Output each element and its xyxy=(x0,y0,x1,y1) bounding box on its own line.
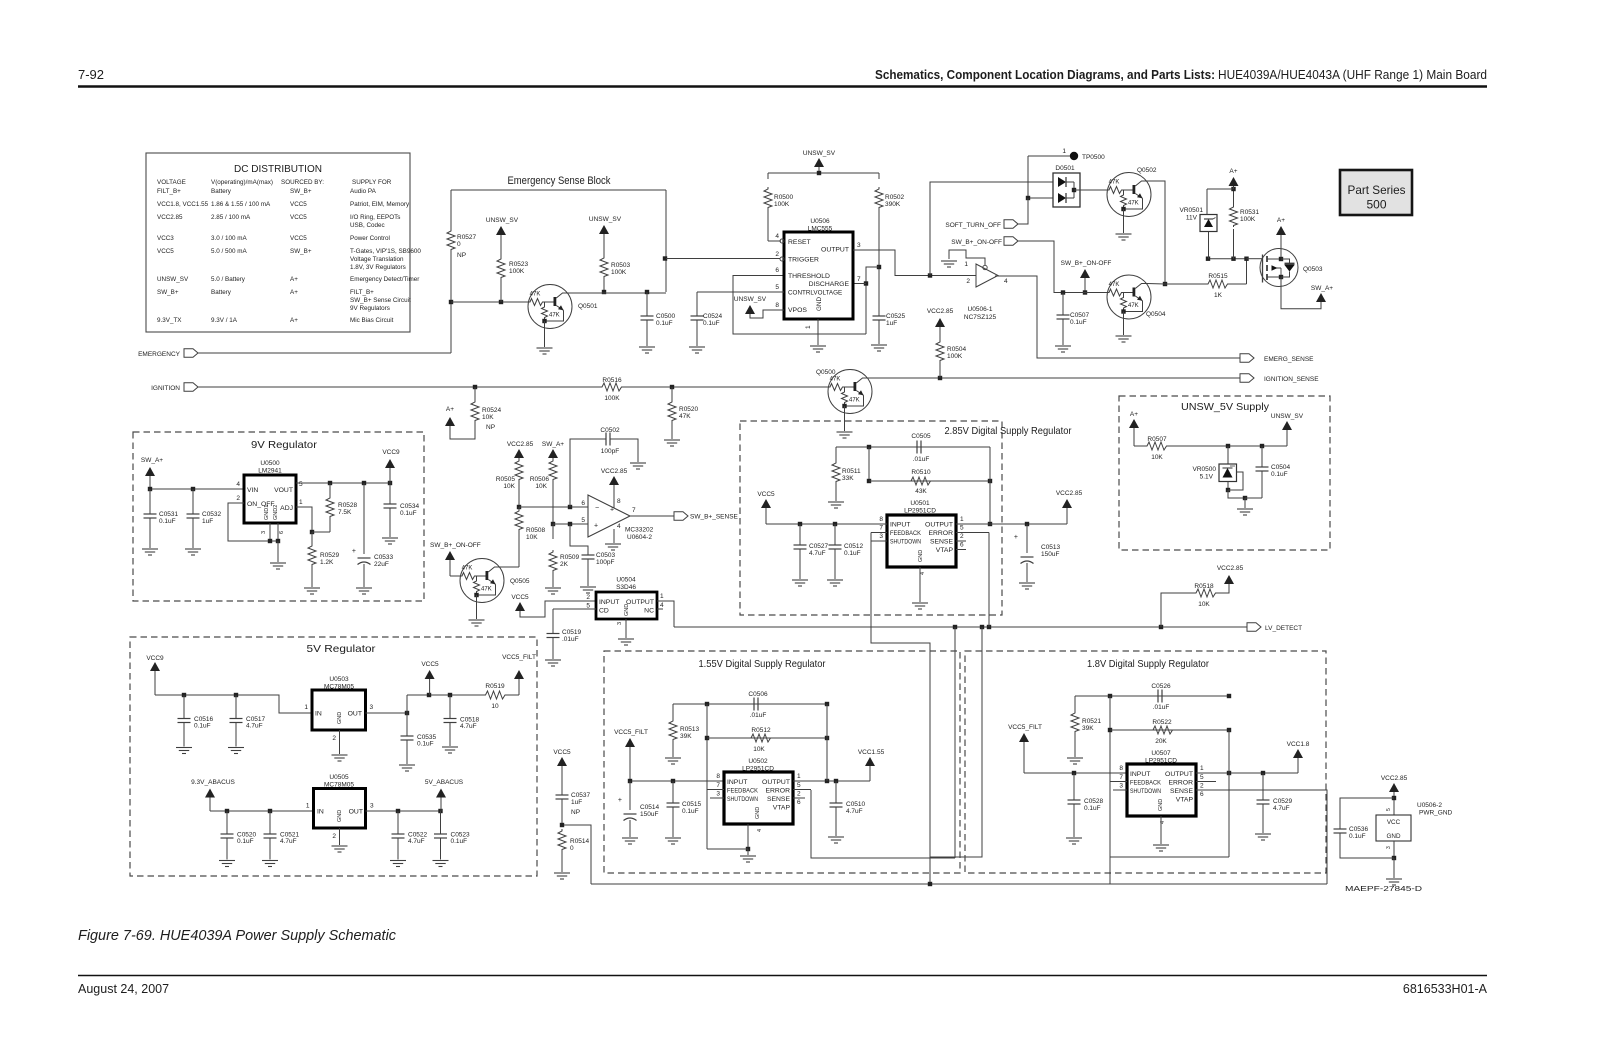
svg-text:3: 3 xyxy=(879,533,883,540)
svg-text:ERROR: ERROR xyxy=(765,788,790,795)
svg-text:2: 2 xyxy=(332,833,336,840)
svg-text:C0513: C0513 xyxy=(1041,544,1061,551)
svg-text:500: 500 xyxy=(1366,198,1386,212)
svg-text:ON_OFF: ON_OFF xyxy=(247,501,275,508)
svg-text:5.0 / 500 mA: 5.0 / 500 mA xyxy=(211,248,248,255)
svg-text:Emergency Sense Block: Emergency Sense Block xyxy=(508,175,611,187)
svg-text:1: 1 xyxy=(304,704,308,711)
svg-text:Q0505: Q0505 xyxy=(510,578,530,585)
svg-text:VCC5: VCC5 xyxy=(553,749,571,756)
svg-text:8: 8 xyxy=(775,302,779,309)
svg-text:C0512: C0512 xyxy=(844,543,864,550)
svg-text:100K: 100K xyxy=(774,201,790,208)
svg-text:FEEDBACK: FEEDBACK xyxy=(1130,780,1161,787)
svg-text:4.7uF: 4.7uF xyxy=(280,838,297,845)
svg-text:R0503: R0503 xyxy=(611,262,631,269)
svg-text:R0513: R0513 xyxy=(680,726,700,733)
svg-text:U0506: U0506 xyxy=(810,218,830,225)
svg-text:VCC3: VCC3 xyxy=(157,235,174,242)
svg-text:VCC5_FILT: VCC5_FILT xyxy=(1008,724,1042,731)
svg-text:VCC9: VCC9 xyxy=(146,655,164,662)
svg-text:VCC5: VCC5 xyxy=(757,491,775,498)
svg-text:Power Control: Power Control xyxy=(350,235,390,242)
svg-text:2.85V Digital Supply Regulator: 2.85V Digital Supply Regulator xyxy=(945,425,1072,437)
svg-text:2: 2 xyxy=(332,735,336,742)
svg-text:9V Regulators: 9V Regulators xyxy=(350,305,390,312)
svg-text:R0521: R0521 xyxy=(1082,718,1102,725)
svg-text:R0512: R0512 xyxy=(751,727,771,734)
svg-text:IN: IN xyxy=(317,809,324,816)
svg-text:LM2941: LM2941 xyxy=(258,468,282,475)
svg-text:47K: 47K xyxy=(679,413,691,420)
svg-text:4.7uF: 4.7uF xyxy=(1273,805,1290,812)
svg-text:8: 8 xyxy=(879,516,883,523)
svg-text:4: 4 xyxy=(1004,278,1008,285)
svg-text:R0523: R0523 xyxy=(509,261,529,268)
svg-text:LP2951CD: LP2951CD xyxy=(904,508,936,515)
svg-text:C0519: C0519 xyxy=(562,629,582,636)
svg-text:C0536: C0536 xyxy=(1349,826,1369,833)
svg-text:47K: 47K xyxy=(481,587,492,593)
svg-text:C0506: C0506 xyxy=(748,691,768,698)
svg-text:1uF: 1uF xyxy=(571,799,582,806)
svg-text:3: 3 xyxy=(1386,846,1392,849)
svg-text:VCC1.55: VCC1.55 xyxy=(858,749,885,756)
svg-text:4: 4 xyxy=(920,572,926,575)
svg-text:OUT: OUT xyxy=(348,711,362,718)
svg-text:SHUTDOWN: SHUTDOWN xyxy=(727,796,758,803)
svg-text:+: + xyxy=(1014,534,1018,541)
svg-text:R0528: R0528 xyxy=(338,502,358,509)
svg-text:6: 6 xyxy=(775,267,779,274)
svg-text:NP: NP xyxy=(571,809,580,816)
svg-text:VPOS: VPOS xyxy=(788,307,807,314)
svg-text:VCC5_FILT: VCC5_FILT xyxy=(502,654,536,661)
svg-text:VCC: VCC xyxy=(1387,819,1401,826)
svg-text:C0515: C0515 xyxy=(682,801,702,808)
svg-text:C0504: C0504 xyxy=(1271,464,1291,471)
svg-text:R0524: R0524 xyxy=(482,407,502,414)
svg-text:C0514: C0514 xyxy=(640,804,660,811)
svg-text:V(operating)/mA(max): V(operating)/mA(max) xyxy=(211,179,273,186)
svg-text:+: + xyxy=(594,523,598,530)
svg-text:U0501: U0501 xyxy=(910,500,930,507)
svg-text:R0506: R0506 xyxy=(530,476,550,483)
svg-text:GND: GND xyxy=(918,550,924,562)
svg-text:GND: GND xyxy=(624,604,630,616)
svg-text:7: 7 xyxy=(879,525,883,532)
svg-text:SW_B+: SW_B+ xyxy=(157,289,179,296)
svg-text:6816533H01-A: 6816533H01-A xyxy=(1403,982,1488,996)
svg-text:A+: A+ xyxy=(290,317,298,324)
svg-text:VCC2.85: VCC2.85 xyxy=(927,308,954,315)
svg-text:INPUT: INPUT xyxy=(1130,771,1150,778)
svg-text:47K: 47K xyxy=(462,566,473,572)
svg-text:SUPPLY FOR: SUPPLY FOR xyxy=(352,179,392,186)
svg-text:ADJ: ADJ xyxy=(280,505,293,512)
svg-text:VTAP: VTAP xyxy=(1176,797,1194,804)
svg-text:VCC5: VCC5 xyxy=(157,248,174,255)
svg-text:2: 2 xyxy=(966,278,970,285)
svg-text:8: 8 xyxy=(716,773,720,780)
svg-text:10K: 10K xyxy=(482,414,494,421)
svg-text:6: 6 xyxy=(581,500,585,507)
svg-text:CONTRLVOLTAGE: CONTRLVOLTAGE xyxy=(788,290,842,297)
svg-text:1.86 & 1.55 / 100 mA: 1.86 & 1.55 / 100 mA xyxy=(211,201,271,208)
svg-text:VTAP: VTAP xyxy=(936,547,954,554)
svg-text:VCC5: VCC5 xyxy=(290,201,307,208)
svg-text:7: 7 xyxy=(857,276,861,283)
svg-text:0.1uF: 0.1uF xyxy=(656,320,673,327)
svg-text:EMERGENCY: EMERGENCY xyxy=(138,351,181,358)
svg-text:CD: CD xyxy=(599,608,609,615)
svg-text:R0511: R0511 xyxy=(842,468,861,475)
svg-text:R0509: R0509 xyxy=(560,554,580,561)
svg-text:OUTPUT: OUTPUT xyxy=(626,599,654,606)
svg-text:VCC2.85: VCC2.85 xyxy=(157,214,183,221)
svg-text:SW_B+: SW_B+ xyxy=(290,188,312,195)
svg-text:R0504: R0504 xyxy=(947,346,967,353)
svg-text:OUTPUT: OUTPUT xyxy=(821,247,849,254)
svg-text:SW_A+: SW_A+ xyxy=(1311,285,1333,292)
svg-text:GND: GND xyxy=(755,807,761,819)
svg-text:5.0 / Battery: 5.0 / Battery xyxy=(211,276,246,283)
svg-text:1.2K: 1.2K xyxy=(320,559,334,566)
svg-text:6: 6 xyxy=(279,531,285,534)
svg-text:4: 4 xyxy=(660,602,664,609)
svg-text:GND: GND xyxy=(337,810,343,822)
svg-text:VOUT: VOUT xyxy=(274,487,293,494)
svg-text:GND1: GND1 xyxy=(264,505,270,520)
svg-text:R0500: R0500 xyxy=(774,194,794,201)
svg-text:47K: 47K xyxy=(1109,282,1120,288)
svg-text:SOFT_TURN_OFF: SOFT_TURN_OFF xyxy=(945,222,1001,229)
svg-text:PWR_GND: PWR_GND xyxy=(1419,810,1453,817)
svg-text:TRIGGER: TRIGGER xyxy=(788,257,819,264)
svg-text:IN: IN xyxy=(315,711,322,718)
svg-text:VR0501: VR0501 xyxy=(1180,207,1204,214)
svg-text:R0508: R0508 xyxy=(526,527,546,534)
svg-text:A+: A+ xyxy=(290,289,298,296)
svg-text:C0528: C0528 xyxy=(1084,798,1104,805)
svg-text:R0531: R0531 xyxy=(1240,209,1260,216)
svg-text:1uF: 1uF xyxy=(202,518,213,525)
svg-text:2: 2 xyxy=(586,594,590,601)
svg-text:47K: 47K xyxy=(849,398,860,404)
svg-text:SHUTDOWN: SHUTDOWN xyxy=(890,539,921,546)
svg-text:47K: 47K xyxy=(549,313,560,319)
svg-text:Q0503: Q0503 xyxy=(1303,266,1323,273)
svg-text:U0506-1: U0506-1 xyxy=(968,306,993,313)
svg-text:SW_B+_ON-OFF: SW_B+_ON-OFF xyxy=(1061,260,1112,267)
svg-text:7-92: 7-92 xyxy=(78,67,104,82)
svg-text:C0531: C0531 xyxy=(159,511,179,518)
svg-text:390K: 390K xyxy=(885,201,901,208)
svg-text:4: 4 xyxy=(617,523,621,530)
svg-text:INPUT: INPUT xyxy=(890,522,910,529)
svg-text:U0502: U0502 xyxy=(748,758,768,765)
svg-text:4: 4 xyxy=(236,481,240,488)
svg-text:5: 5 xyxy=(1200,774,1204,781)
svg-text:3: 3 xyxy=(261,531,267,534)
svg-text:R0519: R0519 xyxy=(485,683,505,690)
svg-text:SW_B+: SW_B+ xyxy=(290,248,312,255)
svg-text:TP0500: TP0500 xyxy=(1082,154,1105,161)
svg-text:LP2951CD: LP2951CD xyxy=(1145,758,1177,765)
svg-text:+: + xyxy=(610,507,614,514)
svg-text:SW_B+ Sense Circuit: SW_B+ Sense Circuit xyxy=(350,297,411,304)
svg-text:LV_DETECT: LV_DETECT xyxy=(1265,625,1302,632)
svg-text:9.3V_ABACUS: 9.3V_ABACUS xyxy=(191,779,235,786)
svg-text:7: 7 xyxy=(1119,774,1123,781)
svg-text:A+: A+ xyxy=(1277,217,1285,224)
svg-text:4.7uF: 4.7uF xyxy=(460,723,477,730)
svg-text:100pF: 100pF xyxy=(601,448,619,455)
svg-text:SW_B+_ON-OFF: SW_B+_ON-OFF xyxy=(430,542,481,549)
svg-text:10K: 10K xyxy=(1151,454,1163,461)
svg-text:INPUT: INPUT xyxy=(599,599,619,606)
svg-text:C0533: C0533 xyxy=(374,554,394,561)
svg-text:2: 2 xyxy=(797,791,801,798)
svg-text:VCC9: VCC9 xyxy=(382,449,400,456)
svg-text:43K: 43K xyxy=(915,488,927,495)
svg-text:0.1uF: 0.1uF xyxy=(844,550,861,557)
svg-text:MC33202: MC33202 xyxy=(625,527,654,534)
svg-text:4.7uF: 4.7uF xyxy=(246,723,263,730)
svg-text:1.55V Digital Supply Regulator: 1.55V Digital Supply Regulator xyxy=(699,658,826,670)
svg-text:VCC1.8, VCC1.55: VCC1.8, VCC1.55 xyxy=(157,201,209,208)
svg-text:U0506-2: U0506-2 xyxy=(1417,802,1442,809)
svg-text:UNSW_SV: UNSW_SV xyxy=(486,217,519,224)
svg-text:1: 1 xyxy=(964,261,968,268)
svg-text:3: 3 xyxy=(370,803,374,810)
svg-text:R0515: R0515 xyxy=(1208,273,1228,280)
svg-text:3: 3 xyxy=(1119,783,1123,790)
svg-text:R0518: R0518 xyxy=(1194,583,1214,590)
svg-text:100K: 100K xyxy=(509,268,525,275)
svg-text:9.3V / 1A: 9.3V / 1A xyxy=(211,317,238,324)
svg-text:Part Series: Part Series xyxy=(1348,183,1406,197)
svg-text:Emergency Detect/Timer: Emergency Detect/Timer xyxy=(350,276,419,283)
svg-text:VCC1.8: VCC1.8 xyxy=(1287,741,1310,748)
svg-text:1: 1 xyxy=(960,516,964,523)
svg-text:2.85 / 100 mA: 2.85 / 100 mA xyxy=(211,214,251,221)
svg-text:3: 3 xyxy=(617,622,623,625)
svg-text:2: 2 xyxy=(775,251,779,258)
svg-text:0.1uF: 0.1uF xyxy=(1070,319,1087,326)
svg-text:MC78M05: MC78M05 xyxy=(324,684,354,691)
svg-text:Q0502: Q0502 xyxy=(1137,167,1157,174)
svg-text:OUTPUT: OUTPUT xyxy=(762,779,790,786)
svg-text:VOLTAGE: VOLTAGE xyxy=(157,179,186,186)
svg-text:C0505: C0505 xyxy=(911,433,931,440)
svg-text:VCC5: VCC5 xyxy=(290,235,307,242)
svg-text:Voltage Translation: Voltage Translation xyxy=(350,256,404,263)
svg-text:VCC2.85: VCC2.85 xyxy=(1217,565,1244,572)
svg-text:ERROR: ERROR xyxy=(1168,780,1193,787)
svg-text:5: 5 xyxy=(586,603,590,610)
svg-text:39K: 39K xyxy=(1082,725,1094,732)
svg-text:C0500: C0500 xyxy=(656,313,676,320)
svg-text:U0503: U0503 xyxy=(329,676,349,683)
svg-text:33K: 33K xyxy=(842,475,854,482)
svg-text:1: 1 xyxy=(660,593,664,600)
svg-text:1.8V, 3V Regulators: 1.8V, 3V Regulators xyxy=(350,264,406,271)
svg-text:C0503: C0503 xyxy=(596,552,616,559)
svg-text:3: 3 xyxy=(370,704,374,711)
svg-text:C0526: C0526 xyxy=(1151,683,1171,690)
svg-text:Figure 7-69. HUE4039A Power Su: Figure 7-69. HUE4039A Power Supply Schem… xyxy=(78,928,397,944)
svg-text:R0516: R0516 xyxy=(602,377,622,384)
svg-text:OUTPUT: OUTPUT xyxy=(925,522,953,529)
svg-text:1: 1 xyxy=(805,325,812,329)
svg-text:SENSE: SENSE xyxy=(1170,788,1194,795)
svg-text:8: 8 xyxy=(1119,765,1123,772)
svg-text:0.1uF: 0.1uF xyxy=(703,320,720,327)
svg-text:SHUTDOWN: SHUTDOWN xyxy=(1130,788,1161,795)
svg-text:R0520: R0520 xyxy=(679,406,699,413)
svg-text:2: 2 xyxy=(1200,783,1204,790)
svg-text:0.1uF: 0.1uF xyxy=(1084,805,1101,812)
svg-text:VCC2.85: VCC2.85 xyxy=(507,441,534,448)
svg-text:100K: 100K xyxy=(611,269,627,276)
svg-text:1: 1 xyxy=(299,499,303,506)
svg-text:UNSW_SV: UNSW_SV xyxy=(734,296,767,303)
svg-text:INPUT: INPUT xyxy=(727,779,747,786)
svg-text:VCC5_FILT: VCC5_FILT xyxy=(614,729,648,736)
svg-text:EMERG_SENSE: EMERG_SENSE xyxy=(1264,356,1314,363)
svg-text:1: 1 xyxy=(1062,148,1066,155)
svg-text:C0529: C0529 xyxy=(1273,798,1293,805)
svg-text:0.1uF: 0.1uF xyxy=(417,741,434,748)
svg-text:150uF: 150uF xyxy=(640,811,658,818)
svg-text:MAEPF-27845-D: MAEPF-27845-D xyxy=(1345,884,1423,893)
svg-text:R0527: R0527 xyxy=(457,234,477,241)
svg-text:10K: 10K xyxy=(503,483,515,490)
svg-text:SW_B+_ON-OFF: SW_B+_ON-OFF xyxy=(951,239,1002,246)
svg-text:10K: 10K xyxy=(1198,601,1210,608)
svg-text:NC7SZ125: NC7SZ125 xyxy=(964,314,997,321)
svg-text:4.7uF: 4.7uF xyxy=(408,838,425,845)
svg-text:9.3V_TX: 9.3V_TX xyxy=(157,317,182,324)
svg-text:U0604-2: U0604-2 xyxy=(627,534,652,541)
svg-text:SW_B+_SENSE: SW_B+_SENSE xyxy=(690,514,739,521)
svg-text:5: 5 xyxy=(960,525,964,532)
svg-text:20K: 20K xyxy=(1155,738,1167,745)
svg-text:5V Regulator: 5V Regulator xyxy=(307,643,377,655)
svg-text:OUTPUT: OUTPUT xyxy=(1165,771,1193,778)
svg-text:FILT_B+: FILT_B+ xyxy=(350,289,374,296)
svg-text:U0507: U0507 xyxy=(1151,750,1171,757)
svg-text:UNSW_SV: UNSW_SV xyxy=(803,150,836,157)
svg-text:2: 2 xyxy=(960,533,964,540)
svg-text:VCC5: VCC5 xyxy=(290,214,307,221)
svg-text:FEEDBACK: FEEDBACK xyxy=(890,530,921,537)
svg-text:THRESHOLD: THRESHOLD xyxy=(788,273,830,280)
svg-text:UNSW_5V Supply: UNSW_5V Supply xyxy=(1181,401,1270,413)
svg-text:USB, Codec: USB, Codec xyxy=(350,222,385,229)
svg-text:NC: NC xyxy=(644,608,654,615)
svg-text:A+: A+ xyxy=(1130,411,1138,418)
svg-text:0.1uF: 0.1uF xyxy=(194,723,211,730)
svg-text:1: 1 xyxy=(1200,765,1204,772)
svg-text:47K: 47K xyxy=(1128,303,1139,309)
svg-text:10: 10 xyxy=(491,703,499,710)
svg-text:August 24, 2007: August 24, 2007 xyxy=(78,982,169,996)
svg-text:Battery: Battery xyxy=(211,188,232,195)
svg-text:100K: 100K xyxy=(1240,216,1256,223)
svg-text:I/O Ring, EEPOTs: I/O Ring, EEPOTs xyxy=(350,214,400,221)
svg-text:0.1uF: 0.1uF xyxy=(1349,833,1366,840)
svg-text:10K: 10K xyxy=(526,534,538,541)
svg-text:C0525: C0525 xyxy=(886,313,906,320)
svg-text:1: 1 xyxy=(797,773,801,780)
svg-text:9V Regulator: 9V Regulator xyxy=(251,439,318,451)
svg-text:11V: 11V xyxy=(1186,215,1198,222)
svg-text:5: 5 xyxy=(1386,808,1392,811)
svg-text:LMC555: LMC555 xyxy=(808,226,833,233)
svg-text:D0501: D0501 xyxy=(1055,165,1075,172)
svg-text:ERROR: ERROR xyxy=(928,530,953,537)
svg-text:S3D46: S3D46 xyxy=(616,584,636,591)
svg-text:HUE4039A/HUE4043A (UHF Range 1: HUE4039A/HUE4043A (UHF Range 1) Main Boa… xyxy=(1218,68,1487,82)
svg-text:5V_ABACUS: 5V_ABACUS xyxy=(425,779,464,786)
svg-text:5: 5 xyxy=(775,284,779,291)
svg-text:A+: A+ xyxy=(446,406,454,413)
svg-text:47K: 47K xyxy=(1109,180,1120,186)
svg-text:47K: 47K xyxy=(530,292,541,298)
svg-text:Battery: Battery xyxy=(211,289,232,296)
svg-text:R0510: R0510 xyxy=(911,469,931,476)
svg-text:C0534: C0534 xyxy=(400,503,420,510)
svg-text:U0505: U0505 xyxy=(329,774,349,781)
svg-text:7: 7 xyxy=(716,782,720,789)
svg-text:10K: 10K xyxy=(535,483,547,490)
svg-text:1.8V Digital Supply Regulator: 1.8V Digital Supply Regulator xyxy=(1087,658,1209,670)
svg-text:U0500: U0500 xyxy=(260,460,280,467)
svg-text:C0507: C0507 xyxy=(1070,312,1090,319)
svg-text:2: 2 xyxy=(236,495,240,502)
svg-text:Schematics, Component Location: Schematics, Component Location Diagrams,… xyxy=(875,68,1215,82)
svg-text:1: 1 xyxy=(306,803,310,810)
svg-text:−: − xyxy=(595,505,599,512)
svg-text:0.1uF: 0.1uF xyxy=(682,808,699,815)
svg-text:4: 4 xyxy=(775,233,779,240)
svg-text:LP2951CD: LP2951CD xyxy=(742,766,774,773)
svg-text:4: 4 xyxy=(757,829,763,832)
svg-text:Q0501: Q0501 xyxy=(578,303,598,310)
svg-text:0: 0 xyxy=(457,241,461,248)
svg-text:Q0504: Q0504 xyxy=(1146,311,1166,318)
svg-text:4.7uF: 4.7uF xyxy=(846,808,863,815)
svg-text:5: 5 xyxy=(797,782,801,789)
svg-text:.01uF: .01uF xyxy=(913,456,930,463)
svg-text:VIN: VIN xyxy=(247,487,258,494)
svg-text:C0532: C0532 xyxy=(202,511,222,518)
svg-text:7.5K: 7.5K xyxy=(338,509,352,516)
svg-text:C0502: C0502 xyxy=(600,427,620,434)
svg-text:39K: 39K xyxy=(680,733,692,740)
svg-text:GND2: GND2 xyxy=(273,505,279,520)
svg-text:6: 6 xyxy=(960,542,964,549)
svg-text:R0514: R0514 xyxy=(570,838,590,845)
svg-text:R0507: R0507 xyxy=(1147,436,1167,443)
svg-text:UNSW_SV: UNSW_SV xyxy=(157,276,189,283)
svg-text:VCC2.85: VCC2.85 xyxy=(1381,775,1408,782)
svg-text:NP: NP xyxy=(486,424,495,431)
svg-text:VCC2.85: VCC2.85 xyxy=(601,468,628,475)
svg-text:GND: GND xyxy=(816,297,823,311)
